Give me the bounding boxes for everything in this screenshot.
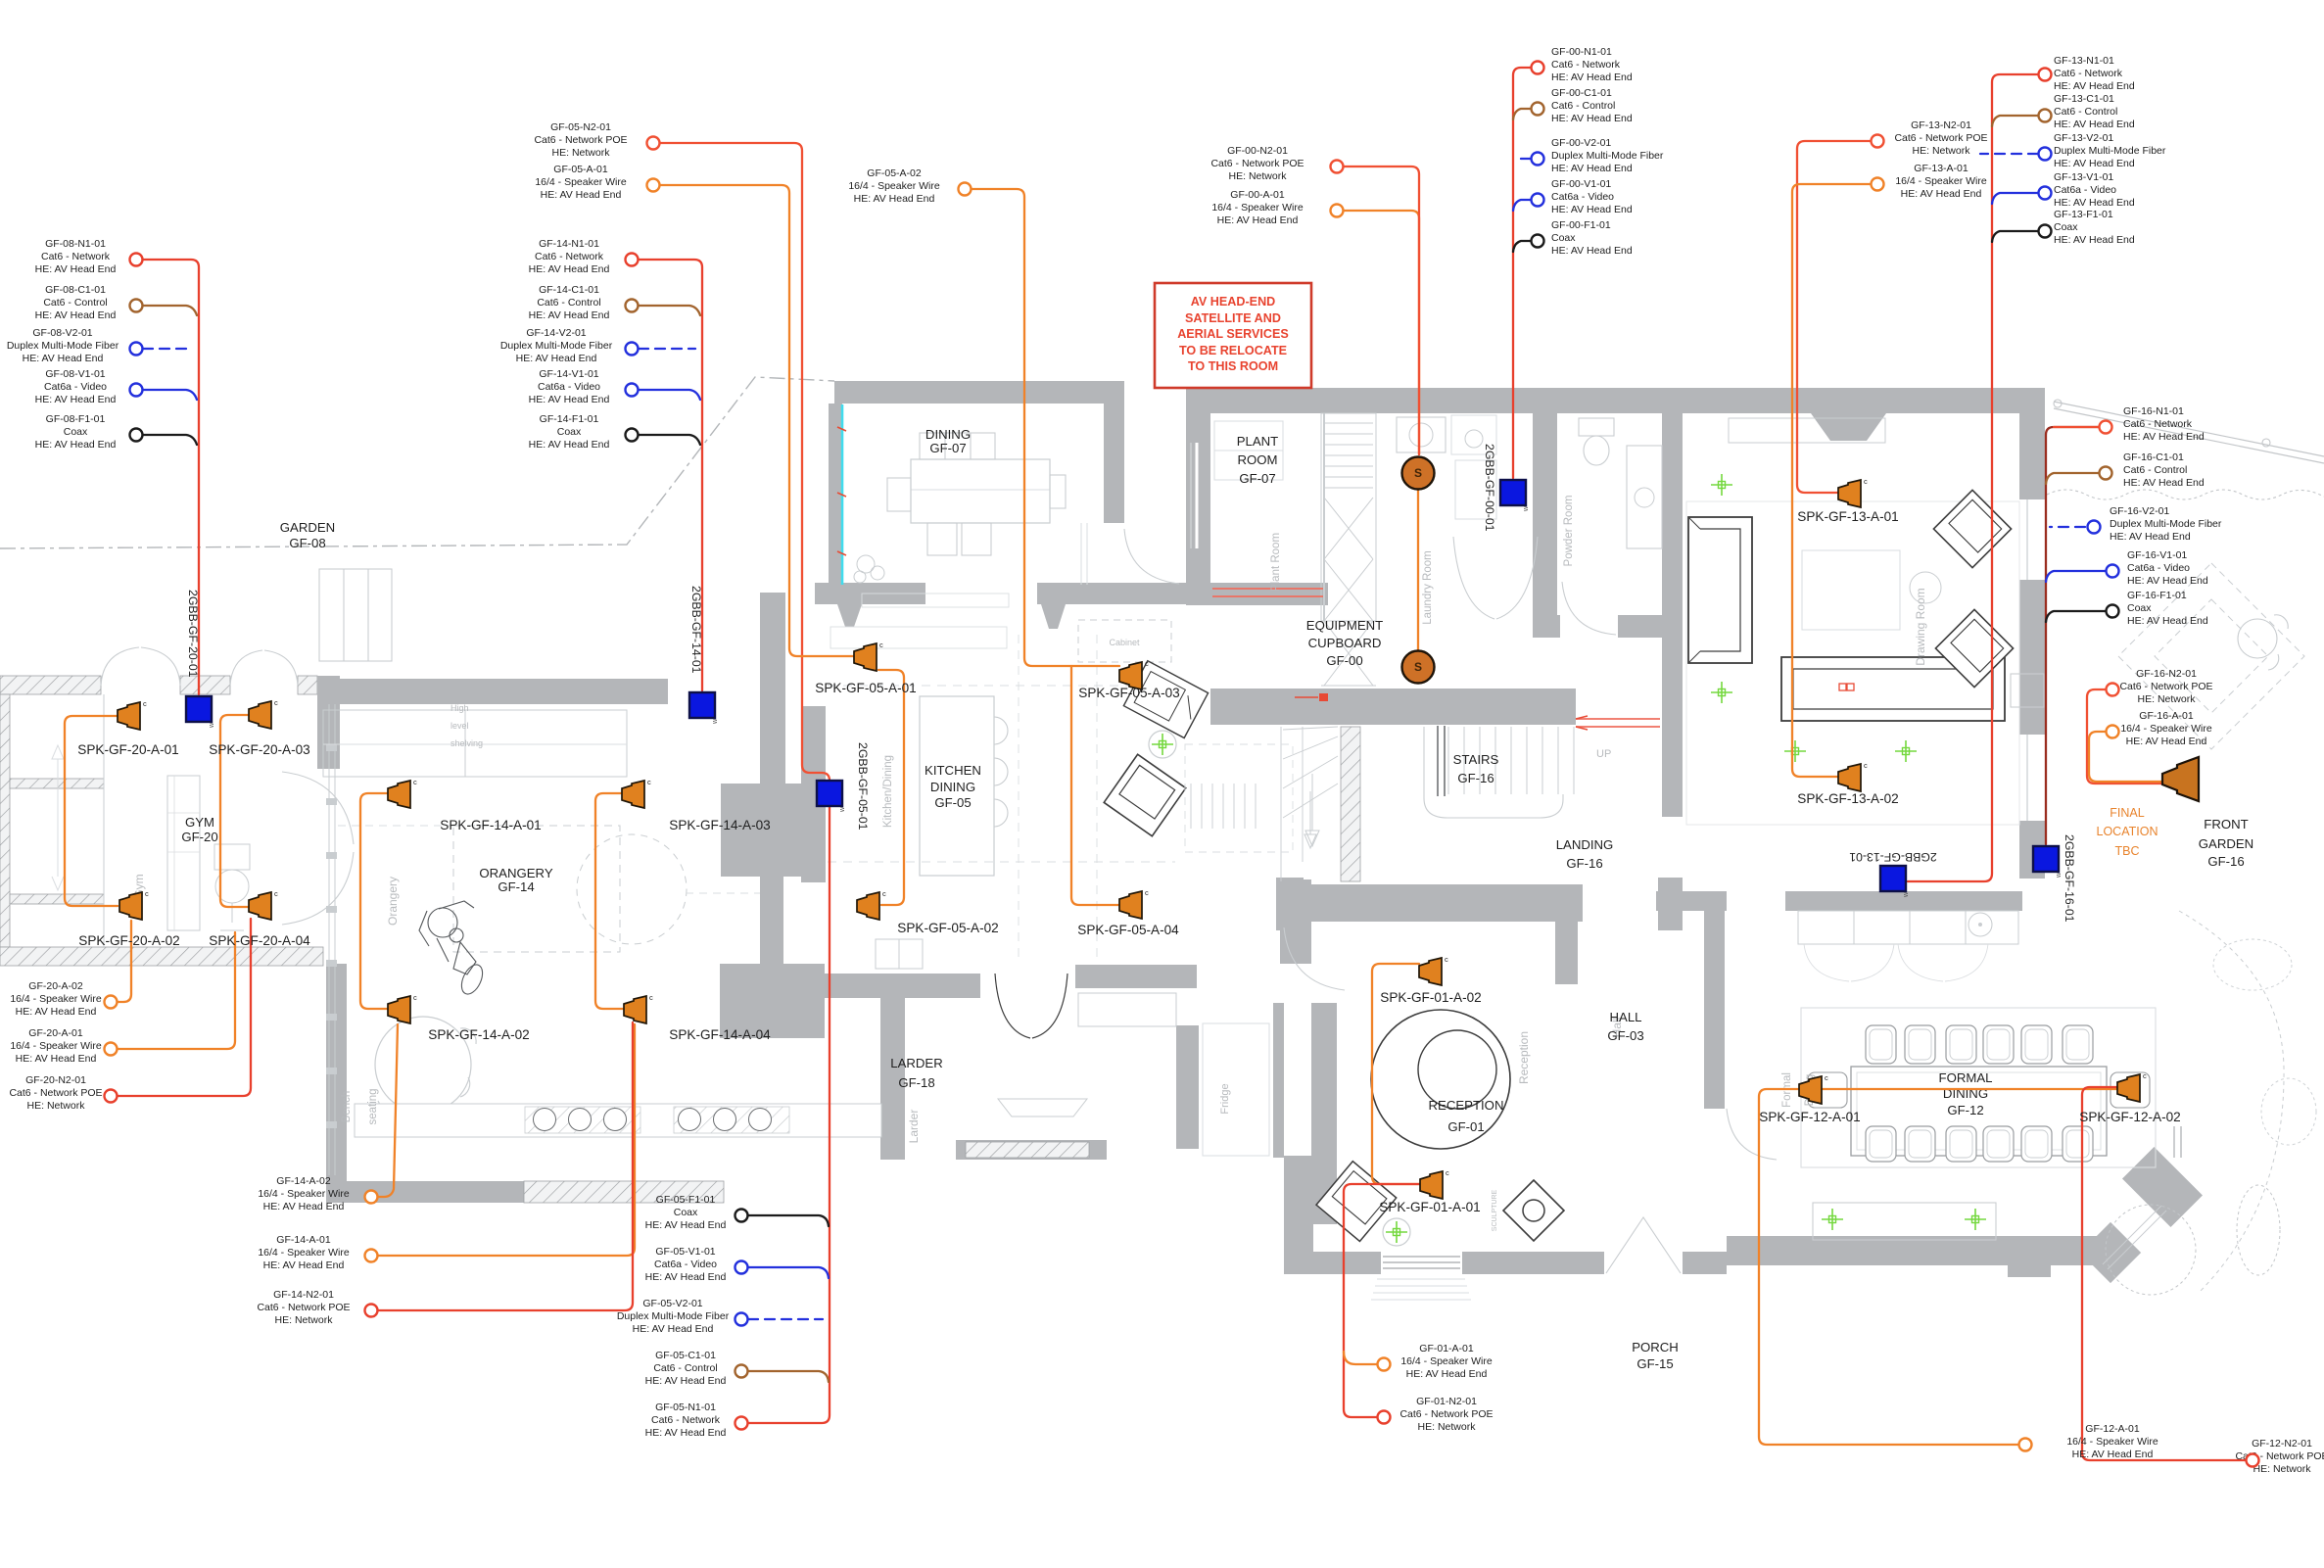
svg-text:Duplex Multi-Mode Fiber: Duplex Multi-Mode Fiber [617,1310,730,1322]
svg-text:GF-14-N1-01: GF-14-N1-01 [539,238,599,250]
svg-text:HE: AV Head End: HE: AV Head End [529,309,610,321]
svg-text:CUPBOARD: CUPBOARD [1308,636,1382,650]
svg-text:16/4 - Speaker Wire: 16/4 - Speaker Wire [2120,723,2212,735]
svg-text:Cat6a - Video: Cat6a - Video [538,381,600,393]
svg-text:GF-00-V1-01: GF-00-V1-01 [1551,178,1611,190]
svg-text:LARDER: LARDER [890,1056,943,1070]
svg-text:HE: AV Head End: HE: AV Head End [16,1006,97,1018]
svg-text:HE: AV Head End: HE: AV Head End [1901,188,1982,200]
svg-text:GF-13-A-01: GF-13-A-01 [1914,163,1968,174]
svg-text:GF-08: GF-08 [289,536,325,550]
svg-text:GF-16-C1-01: GF-16-C1-01 [2123,451,2184,463]
svg-text:SPK-GF-20-A-04: SPK-GF-20-A-04 [209,933,310,948]
svg-text:HE: AV Head End: HE: AV Head End [2127,615,2208,627]
svg-text:HE: AV Head End: HE: AV Head End [1217,214,1299,226]
svg-text:GF-07: GF-07 [1239,471,1275,486]
svg-text:ORANGERY: ORANGERY [479,866,552,880]
svg-text:2GBB-GF-16-01: 2GBB-GF-16-01 [2063,834,2076,923]
svg-text:GYM: GYM [185,815,214,830]
svg-text:GARDEN: GARDEN [280,520,335,535]
svg-text:w: w [1903,891,1910,898]
svg-text:GF-13-V2-01: GF-13-V2-01 [2054,132,2113,144]
svg-text:SPK-GF-13-A-02: SPK-GF-13-A-02 [1797,791,1899,806]
svg-text:SPK-GF-05-A-03: SPK-GF-05-A-03 [1078,686,1180,700]
svg-text:Cat6 - Control: Cat6 - Control [2123,464,2187,476]
svg-text:HE: Network: HE: Network [2138,693,2197,705]
svg-text:GF-13-C1-01: GF-13-C1-01 [2054,93,2114,105]
svg-text:HE: AV Head End: HE: AV Head End [35,263,117,275]
svg-text:GF-16-V1-01: GF-16-V1-01 [2127,549,2187,561]
svg-text:c: c [2143,1071,2147,1080]
svg-text:16/4 - Speaker Wire: 16/4 - Speaker Wire [10,1040,102,1052]
svg-text:Kitchen/Dining: Kitchen/Dining [882,755,894,828]
svg-text:HE: Network: HE: Network [1418,1421,1477,1433]
svg-text:w: w [2056,872,2063,879]
svg-text:S: S [1414,660,1422,674]
svg-text:HE: Network: HE: Network [1229,170,1288,182]
svg-text:SCULPTURE: SCULPTURE [1492,1189,1498,1231]
svg-text:HE: AV Head End: HE: AV Head End [2123,477,2205,489]
svg-text:TO BE RELOCATE: TO BE RELOCATE [1179,344,1287,357]
svg-text:GF-16-V2-01: GF-16-V2-01 [2110,505,2169,517]
svg-text:16/4 - Speaker Wire: 16/4 - Speaker Wire [10,993,102,1005]
svg-text:SPK-GF-05-A-01: SPK-GF-05-A-01 [815,681,917,695]
svg-text:GF-14-V2-01: GF-14-V2-01 [526,327,586,339]
svg-text:GF-14-N2-01: GF-14-N2-01 [273,1289,334,1301]
svg-text:GF-16-N2-01: GF-16-N2-01 [2136,668,2197,680]
svg-text:16/4 - Speaker Wire: 16/4 - Speaker Wire [1211,202,1304,214]
svg-text:Cat6 - Control: Cat6 - Control [537,297,600,309]
svg-text:GF-16: GF-16 [2207,854,2244,869]
svg-text:GF-13-V1-01: GF-13-V1-01 [2054,171,2113,183]
svg-text:c: c [274,698,278,707]
svg-text:HALL: HALL [1610,1010,1642,1024]
svg-text:GF-13-N2-01: GF-13-N2-01 [1911,119,1971,131]
svg-text:Cat6 - Network: Cat6 - Network [2054,68,2123,79]
svg-text:SPK-GF-20-A-03: SPK-GF-20-A-03 [209,742,310,757]
svg-text:16/4 - Speaker Wire: 16/4 - Speaker Wire [258,1247,350,1259]
svg-text:HE: Network: HE: Network [1913,145,1971,157]
svg-text:SPK-GF-14-A-01: SPK-GF-14-A-01 [440,818,542,832]
svg-text:GF-16-N1-01: GF-16-N1-01 [2123,405,2184,417]
svg-text:GF-20-N2-01: GF-20-N2-01 [25,1074,86,1086]
svg-text:GF-14-F1-01: GF-14-F1-01 [540,413,599,425]
svg-text:LANDING: LANDING [1556,837,1614,852]
svg-text:Coax: Coax [1551,232,1576,244]
svg-text:HE: AV Head End: HE: AV Head End [1551,163,1633,174]
svg-text:S: S [1414,466,1422,480]
svg-text:Cat6 - Control: Cat6 - Control [2054,106,2117,118]
svg-text:HE: AV Head End: HE: AV Head End [35,394,117,405]
svg-text:c: c [274,889,278,898]
svg-text:2GBB-GF-14-01: 2GBB-GF-14-01 [689,586,703,674]
svg-text:HE: AV Head End: HE: AV Head End [2127,575,2208,587]
svg-text:GF-08-V1-01: GF-08-V1-01 [45,368,105,380]
svg-text:GF-00-N1-01: GF-00-N1-01 [1551,46,1612,58]
svg-text:Coax: Coax [2054,221,2078,233]
svg-text:HE: AV Head End: HE: AV Head End [645,1219,727,1231]
svg-text:Reception: Reception [1517,1031,1531,1084]
svg-text:GF-14-A-01: GF-14-A-01 [276,1234,331,1246]
svg-text:GF-15: GF-15 [1636,1356,1673,1371]
svg-text:Cat6a - Video: Cat6a - Video [44,381,107,393]
svg-text:SPK-GF-05-A-04: SPK-GF-05-A-04 [1077,923,1179,937]
svg-text:c: c [879,641,883,649]
svg-text:FINAL: FINAL [2110,806,2144,820]
svg-text:ROOM: ROOM [1237,452,1277,467]
svg-text:SPK-GF-12-A-01: SPK-GF-12-A-01 [1759,1110,1861,1124]
svg-text:HE: AV Head End: HE: AV Head End [854,193,935,205]
svg-text:Cat6a - Video: Cat6a - Video [654,1259,717,1270]
svg-text:HE: AV Head End: HE: AV Head End [2054,158,2135,169]
svg-text:HE: AV Head End: HE: AV Head End [1551,113,1633,124]
svg-text:GF-12-N2-01: GF-12-N2-01 [2252,1438,2312,1449]
svg-text:GF-12-A-01: GF-12-A-01 [2085,1423,2140,1435]
svg-text:AV HEAD-END: AV HEAD-END [1191,295,1276,309]
svg-text:GF-00: GF-00 [1326,653,1362,668]
svg-text:Coax: Coax [674,1207,698,1218]
svg-text:HE: AV Head End: HE: AV Head End [529,394,610,405]
svg-text:HE: AV Head End: HE: AV Head End [23,353,104,364]
svg-text:GF-16-A-01: GF-16-A-01 [2139,710,2194,722]
svg-text:GF-08-C1-01: GF-08-C1-01 [45,284,106,296]
svg-text:HE: Network: HE: Network [275,1314,334,1326]
svg-text:Cat6 - Network POE: Cat6 - Network POE [1399,1408,1493,1420]
svg-text:SPK-GF-20-A-02: SPK-GF-20-A-02 [78,933,180,948]
svg-text:FRONT: FRONT [2204,817,2248,832]
svg-text:Cat6 - Network POE: Cat6 - Network POE [1210,158,1304,169]
svg-text:GF-05-A-01: GF-05-A-01 [553,164,608,175]
svg-text:HE: Network: HE: Network [27,1100,86,1112]
svg-text:Cat6 - Control: Cat6 - Control [653,1362,717,1374]
svg-text:HE: AV Head End: HE: AV Head End [2123,431,2205,443]
svg-text:c: c [1864,477,1868,486]
svg-text:HE: AV Head End: HE: AV Head End [633,1323,714,1335]
svg-text:HE: AV Head End: HE: AV Head End [16,1053,97,1065]
svg-text:PLANT: PLANT [1237,434,1279,449]
svg-text:DINING: DINING [925,427,971,442]
svg-text:HE: AV Head End: HE: AV Head End [263,1259,345,1271]
svg-text:GF-13-N1-01: GF-13-N1-01 [2054,55,2114,67]
svg-text:STAIRS: STAIRS [1453,752,1499,767]
svg-text:SPK-GF-14-A-04: SPK-GF-14-A-04 [669,1027,771,1042]
svg-text:HE: AV Head End: HE: AV Head End [2054,197,2135,209]
svg-text:GF-16: GF-16 [1457,771,1494,785]
svg-text:HE: AV Head End: HE: AV Head End [645,1271,727,1283]
svg-text:PORCH: PORCH [1632,1340,1679,1354]
svg-text:GF-05-V2-01: GF-05-V2-01 [642,1298,702,1309]
svg-text:SATELLITE AND: SATELLITE AND [1185,311,1281,325]
svg-text:GF-05-C1-01: GF-05-C1-01 [655,1350,716,1361]
svg-text:Orangery: Orangery [386,877,400,926]
svg-text:Powder Room: Powder Room [1563,496,1575,567]
svg-text:2GBB-GF-13-01: 2GBB-GF-13-01 [1849,850,1937,864]
svg-text:Laundry Room: Laundry Room [1422,550,1434,624]
svg-text:GF-12: GF-12 [1947,1103,1983,1117]
svg-text:Coax: Coax [64,426,88,438]
svg-text:HE: AV Head End: HE: AV Head End [2054,119,2135,130]
svg-text:Cat6 - Network POE: Cat6 - Network POE [9,1087,102,1099]
svg-text:HE: AV Head End: HE: AV Head End [2072,1449,2154,1460]
svg-text:GF-05-V1-01: GF-05-V1-01 [655,1246,715,1258]
svg-text:HE: AV Head End: HE: AV Head End [529,263,610,275]
svg-text:2GBB-GF-00-01: 2GBB-GF-00-01 [1483,444,1496,532]
svg-text:level: level [451,721,469,731]
svg-text:shelving: shelving [451,738,483,748]
svg-text:c: c [1445,955,1448,964]
svg-text:Cat6 - Control: Cat6 - Control [43,297,107,309]
svg-text:KITCHEN: KITCHEN [925,763,981,778]
svg-text:GF-08-F1-01: GF-08-F1-01 [46,413,106,425]
svg-text:c: c [413,993,417,1002]
svg-text:c: c [1145,888,1149,897]
svg-text:GF-00-C1-01: GF-00-C1-01 [1551,87,1612,99]
svg-text:Cat6 - Network: Cat6 - Network [651,1414,721,1426]
svg-text:c: c [882,889,886,898]
svg-text:GF-00-A-01: GF-00-A-01 [1230,189,1285,201]
svg-text:GF-16-F1-01: GF-16-F1-01 [2127,590,2187,601]
svg-text:16/4 - Speaker Wire: 16/4 - Speaker Wire [535,176,627,188]
svg-text:Duplex Multi-Mode Fiber: Duplex Multi-Mode Fiber [2054,145,2166,157]
svg-text:HE: AV Head End: HE: AV Head End [516,353,597,364]
svg-text:SPK-GF-20-A-01: SPK-GF-20-A-01 [77,742,179,757]
svg-text:GF-08-V2-01: GF-08-V2-01 [32,327,92,339]
svg-text:Coax: Coax [2127,602,2152,614]
svg-text:Cat6a - Video: Cat6a - Video [2127,562,2190,574]
svg-text:GARDEN: GARDEN [2199,836,2253,851]
svg-text:SPK-GF-14-A-03: SPK-GF-14-A-03 [669,818,771,832]
svg-text:Cat6 - Network POE: Cat6 - Network POE [2119,681,2212,692]
svg-text:SPK-GF-01-A-01: SPK-GF-01-A-01 [1379,1200,1481,1214]
svg-text:GF-00-N2-01: GF-00-N2-01 [1227,145,1288,157]
svg-text:GF-01: GF-01 [1447,1119,1484,1134]
svg-text:GF-20: GF-20 [181,830,217,844]
svg-text:GF-16: GF-16 [1566,856,1602,871]
svg-text:Duplex Multi-Mode Fiber: Duplex Multi-Mode Fiber [1551,150,1664,162]
svg-text:GF-05-N1-01: GF-05-N1-01 [655,1402,716,1413]
svg-text:HE: AV Head End: HE: AV Head End [541,189,622,201]
svg-text:LOCATION: LOCATION [2097,825,2158,838]
svg-text:c: c [145,889,149,898]
svg-text:GF-00-V2-01: GF-00-V2-01 [1551,137,1611,149]
svg-text:HE: AV Head End: HE: AV Head End [529,439,610,451]
svg-text:Cat6a - Video: Cat6a - Video [1551,191,1614,203]
svg-text:HE: Network: HE: Network [552,147,611,159]
svg-text:High: High [451,703,469,713]
svg-text:HE: AV Head End: HE: AV Head End [645,1375,727,1387]
svg-text:AERIAL SERVICES: AERIAL SERVICES [1177,327,1289,341]
svg-text:SPK-GF-05-A-02: SPK-GF-05-A-02 [897,921,999,935]
svg-text:Cabinet: Cabinet [1109,638,1140,647]
svg-text:TO THIS ROOM: TO THIS ROOM [1188,359,1278,373]
svg-text:GF-20-A-02: GF-20-A-02 [28,980,83,992]
svg-text:c: c [647,778,651,786]
svg-text:HE: AV Head End: HE: AV Head End [1551,71,1633,83]
svg-text:c: c [143,699,147,708]
svg-text:16/4 - Speaker Wire: 16/4 - Speaker Wire [258,1188,350,1200]
svg-text:HE: AV Head End: HE: AV Head End [35,309,117,321]
svg-text:UP: UP [1596,748,1611,760]
svg-text:HE: AV Head End: HE: AV Head End [1406,1368,1488,1380]
svg-text:GF-13-F1-01: GF-13-F1-01 [2054,209,2113,220]
svg-text:GF-08-N1-01: GF-08-N1-01 [45,238,106,250]
svg-text:TBC: TBC [2115,844,2140,858]
svg-text:Coax: Coax [557,426,582,438]
svg-text:SPK-GF-01-A-02: SPK-GF-01-A-02 [1380,990,1482,1005]
svg-text:2GBB-GF-20-01: 2GBB-GF-20-01 [186,590,200,678]
svg-text:16/4 - Speaker Wire: 16/4 - Speaker Wire [1895,175,1987,187]
svg-text:2GBB-GF-05-01: 2GBB-GF-05-01 [856,742,870,831]
svg-text:c: c [1825,1073,1828,1082]
svg-text:Cat6 - Network POE: Cat6 - Network POE [534,134,627,146]
svg-text:GF-05-N2-01: GF-05-N2-01 [550,121,611,133]
svg-text:16/4 - Speaker Wire: 16/4 - Speaker Wire [1400,1355,1493,1367]
svg-text:GF-05-F1-01: GF-05-F1-01 [656,1194,716,1206]
svg-text:RECEPTION: RECEPTION [1429,1098,1504,1113]
svg-text:Bench: Bench [341,1091,353,1123]
svg-text:Cat6 - Network: Cat6 - Network [535,251,604,262]
svg-text:SPK-GF-12-A-02: SPK-GF-12-A-02 [2079,1110,2181,1124]
svg-text:Duplex Multi-Mode Fiber: Duplex Multi-Mode Fiber [7,340,119,352]
svg-text:FORMAL: FORMAL [1939,1070,1993,1085]
svg-text:SPK-GF-13-A-01: SPK-GF-13-A-01 [1797,509,1899,524]
svg-text:GF-05: GF-05 [934,795,971,810]
svg-text:EQUIPMENT: EQUIPMENT [1306,618,1383,633]
svg-text:Plant Room: Plant Room [1270,533,1282,592]
svg-text:HE: AV Head End: HE: AV Head End [263,1201,345,1212]
svg-text:HE: AV Head End: HE: AV Head End [645,1427,727,1439]
svg-text:HE: AV Head End: HE: AV Head End [2054,80,2135,92]
svg-text:c: c [1145,659,1149,668]
svg-text:Duplex Multi-Mode Fiber: Duplex Multi-Mode Fiber [2110,518,2222,530]
svg-text:Drawing Room: Drawing Room [1914,588,1927,665]
svg-text:c: c [1864,761,1868,770]
svg-text:w: w [1523,505,1530,512]
svg-text:c: c [649,993,653,1002]
svg-text:HE: AV Head End: HE: AV Head End [1551,245,1633,257]
svg-text:GF-20-A-01: GF-20-A-01 [28,1027,83,1039]
svg-text:HE: AV Head End: HE: AV Head End [1551,204,1633,215]
svg-text:c: c [413,778,417,786]
svg-text:Cat6 - Network POE: Cat6 - Network POE [257,1302,350,1313]
svg-text:Cat6 - Network POE: Cat6 - Network POE [1894,132,1987,144]
svg-text:Cat6a - Video: Cat6a - Video [2054,184,2116,196]
svg-text:HE: AV Head End: HE: AV Head End [2126,736,2207,747]
svg-text:GF-07: GF-07 [929,441,966,455]
svg-text:DINING: DINING [930,780,975,794]
svg-text:Cat6 - Control: Cat6 - Control [1551,100,1615,112]
svg-text:w: w [712,718,719,725]
svg-text:GF-14-A-02: GF-14-A-02 [276,1175,331,1187]
svg-text:w: w [209,722,215,729]
svg-text:Fridge: Fridge [1219,1083,1231,1114]
svg-text:HE: AV Head End: HE: AV Head End [35,439,117,451]
svg-text:SPK-GF-14-A-02: SPK-GF-14-A-02 [428,1027,530,1042]
svg-text:HE: AV Head End: HE: AV Head End [2110,531,2191,543]
svg-text:16/4 - Speaker Wire: 16/4 - Speaker Wire [848,180,940,192]
svg-text:GF-14-V1-01: GF-14-V1-01 [539,368,598,380]
svg-text:GF-14: GF-14 [498,879,534,894]
svg-text:c: c [1446,1168,1449,1177]
svg-text:Cat6 - Network: Cat6 - Network [41,251,111,262]
svg-text:Cat6 - Network: Cat6 - Network [2123,418,2193,430]
svg-text:Duplex Multi-Mode Fiber: Duplex Multi-Mode Fiber [500,340,613,352]
svg-text:GF-03: GF-03 [1607,1028,1643,1043]
svg-text:Larder: Larder [907,1110,921,1144]
svg-text:16/4 - Speaker Wire: 16/4 - Speaker Wire [2066,1436,2158,1448]
svg-text:GF-01-N2-01: GF-01-N2-01 [1416,1396,1477,1407]
svg-text:GF-14-C1-01: GF-14-C1-01 [539,284,599,296]
svg-text:GF-18: GF-18 [898,1075,934,1090]
svg-text:HE: Network: HE: Network [2253,1463,2312,1475]
svg-text:Cat6 - Network: Cat6 - Network [1551,59,1621,71]
svg-text:seating: seating [367,1088,379,1124]
svg-text:GF-05-A-02: GF-05-A-02 [867,167,922,179]
svg-text:GF-01-A-01: GF-01-A-01 [1419,1343,1474,1354]
svg-text:GF-00-F1-01: GF-00-F1-01 [1551,219,1611,231]
svg-text:HE: AV Head End: HE: AV Head End [2054,234,2135,246]
svg-text:w: w [839,806,846,813]
